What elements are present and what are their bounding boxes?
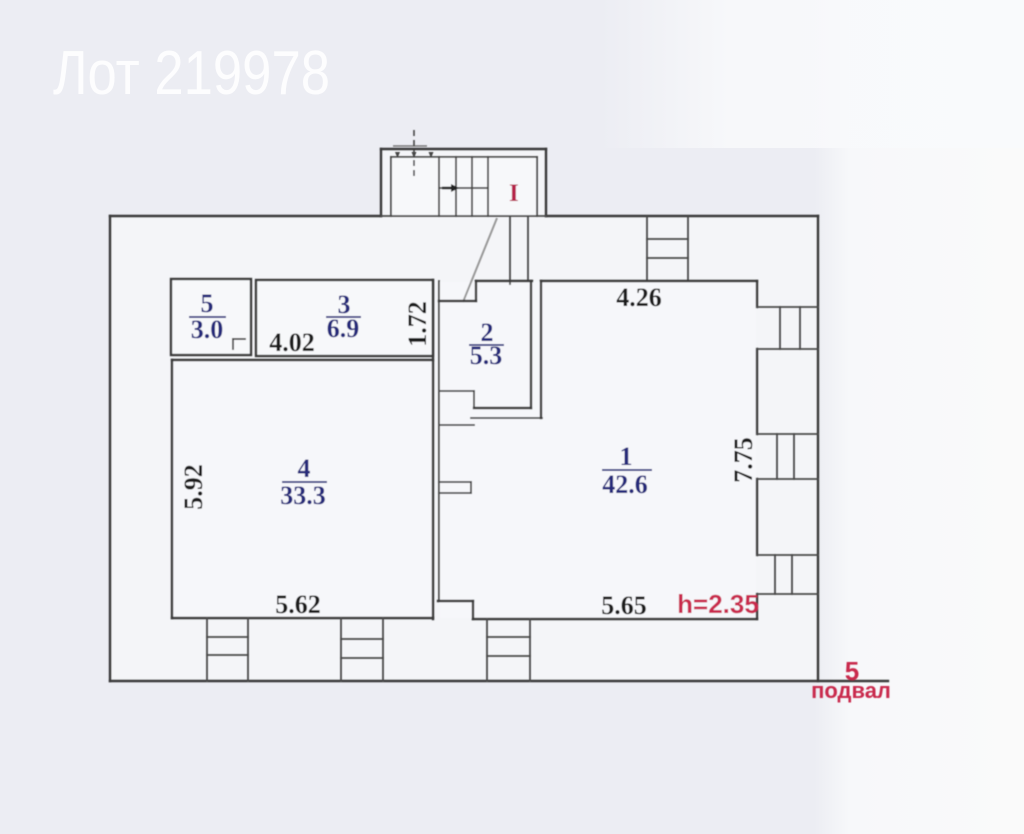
- svg-text:h=2.35: h=2.35: [677, 589, 759, 619]
- svg-text:4: 4: [298, 454, 311, 483]
- svg-text:6.9: 6.9: [327, 314, 360, 343]
- svg-text:42.6: 42.6: [602, 470, 648, 499]
- svg-text:5: 5: [201, 289, 214, 318]
- svg-text:Лот 219978: Лот 219978: [53, 39, 330, 108]
- svg-text:5.92: 5.92: [179, 464, 208, 510]
- svg-text:подвал: подвал: [811, 678, 891, 703]
- svg-text:I: I: [509, 180, 519, 207]
- svg-text:33.3: 33.3: [280, 481, 326, 510]
- svg-text:5.62: 5.62: [275, 590, 321, 619]
- svg-text:4.02: 4.02: [269, 328, 315, 357]
- svg-text:5.65: 5.65: [601, 591, 647, 620]
- svg-text:1: 1: [620, 442, 633, 471]
- svg-text:3.0: 3.0: [191, 315, 224, 344]
- svg-text:1.72: 1.72: [403, 301, 432, 347]
- svg-text:7.75: 7.75: [729, 437, 758, 483]
- svg-text:4.26: 4.26: [616, 283, 662, 312]
- svg-text:5.3: 5.3: [470, 341, 503, 370]
